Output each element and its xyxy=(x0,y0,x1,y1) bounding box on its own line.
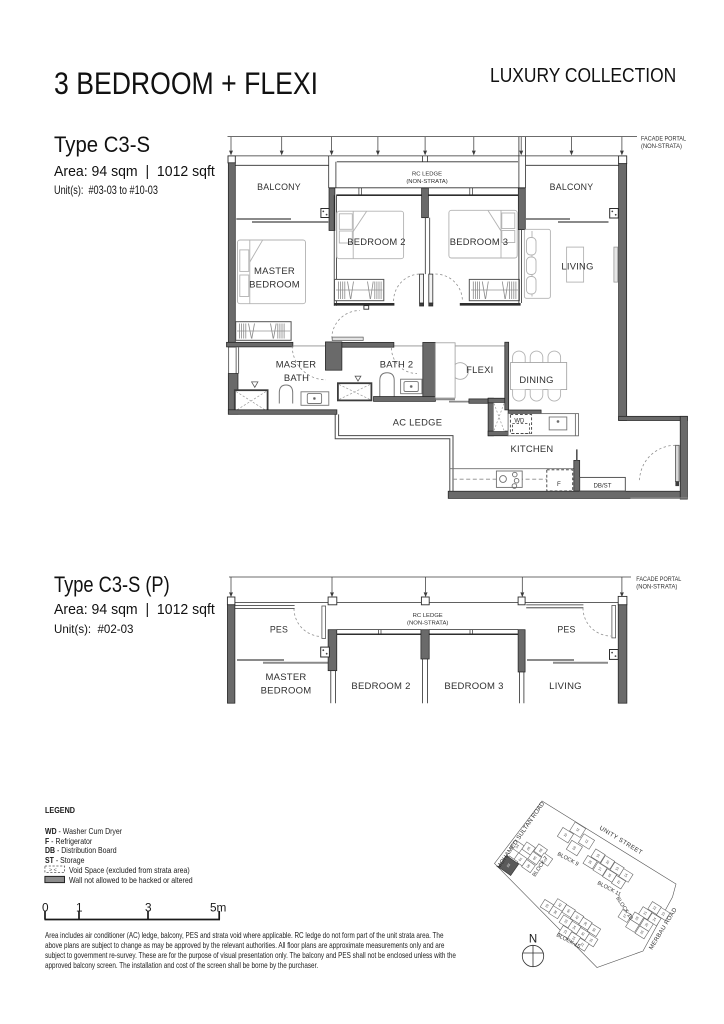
svg-text:BALCONY: BALCONY xyxy=(550,182,594,192)
svg-text:BEDROOM 2: BEDROOM 2 xyxy=(351,681,410,692)
svg-text:F: F xyxy=(557,481,561,488)
svg-text:BEDROOM 3: BEDROOM 3 xyxy=(450,236,509,247)
svg-text:DB/ST: DB/ST xyxy=(594,482,612,489)
svg-text:1: 1 xyxy=(76,901,83,915)
svg-text:BEDROOM: BEDROOM xyxy=(261,686,312,697)
svg-text:RC LEDGE: RC LEDGE xyxy=(413,613,443,619)
svg-text:UNITY STREET: UNITY STREET xyxy=(598,825,644,857)
svg-text:RC LEDGE: RC LEDGE xyxy=(412,172,442,178)
svg-text:WD: WD xyxy=(514,418,525,424)
svg-text:BEDROOM: BEDROOM xyxy=(249,280,300,291)
svg-text:BALCONY: BALCONY xyxy=(257,182,301,192)
svg-text:5m: 5m xyxy=(210,901,227,915)
svg-text:LIVING: LIVING xyxy=(561,261,593,272)
svg-text:0: 0 xyxy=(42,901,49,915)
svg-text:> <: > < xyxy=(49,868,57,874)
svg-text:BEDROOM 3: BEDROOM 3 xyxy=(444,681,503,692)
svg-text:FLEXI: FLEXI xyxy=(466,364,493,375)
svg-text:(NON-STRATA): (NON-STRATA) xyxy=(407,620,448,626)
svg-text:BATH 2: BATH 2 xyxy=(380,358,414,369)
svg-text:BATH: BATH xyxy=(284,372,309,383)
svg-text:FACADE PORTAL: FACADE PORTAL xyxy=(641,135,686,142)
svg-text:MASTER: MASTER xyxy=(254,266,295,277)
svg-text:(NON-STRATA): (NON-STRATA) xyxy=(636,584,677,591)
svg-text:N: N xyxy=(529,934,537,946)
svg-text:DINING: DINING xyxy=(519,374,553,385)
svg-text:KITCHEN: KITCHEN xyxy=(511,443,554,454)
svg-text:MASTER: MASTER xyxy=(265,672,306,683)
svg-text:FACADE PORTAL: FACADE PORTAL xyxy=(636,576,681,583)
svg-text:AC LEDGE: AC LEDGE xyxy=(393,417,442,428)
svg-text:(NON-STRATA): (NON-STRATA) xyxy=(641,143,682,150)
svg-text:LIVING: LIVING xyxy=(549,681,582,692)
svg-text:(NON-STRATA): (NON-STRATA) xyxy=(406,179,447,185)
svg-text:MASTER: MASTER xyxy=(276,358,317,369)
svg-text:BEDROOM 2: BEDROOM 2 xyxy=(347,236,406,247)
svg-text:PES: PES xyxy=(270,625,288,635)
svg-text:PES: PES xyxy=(557,625,575,635)
svg-text:3: 3 xyxy=(145,901,152,915)
